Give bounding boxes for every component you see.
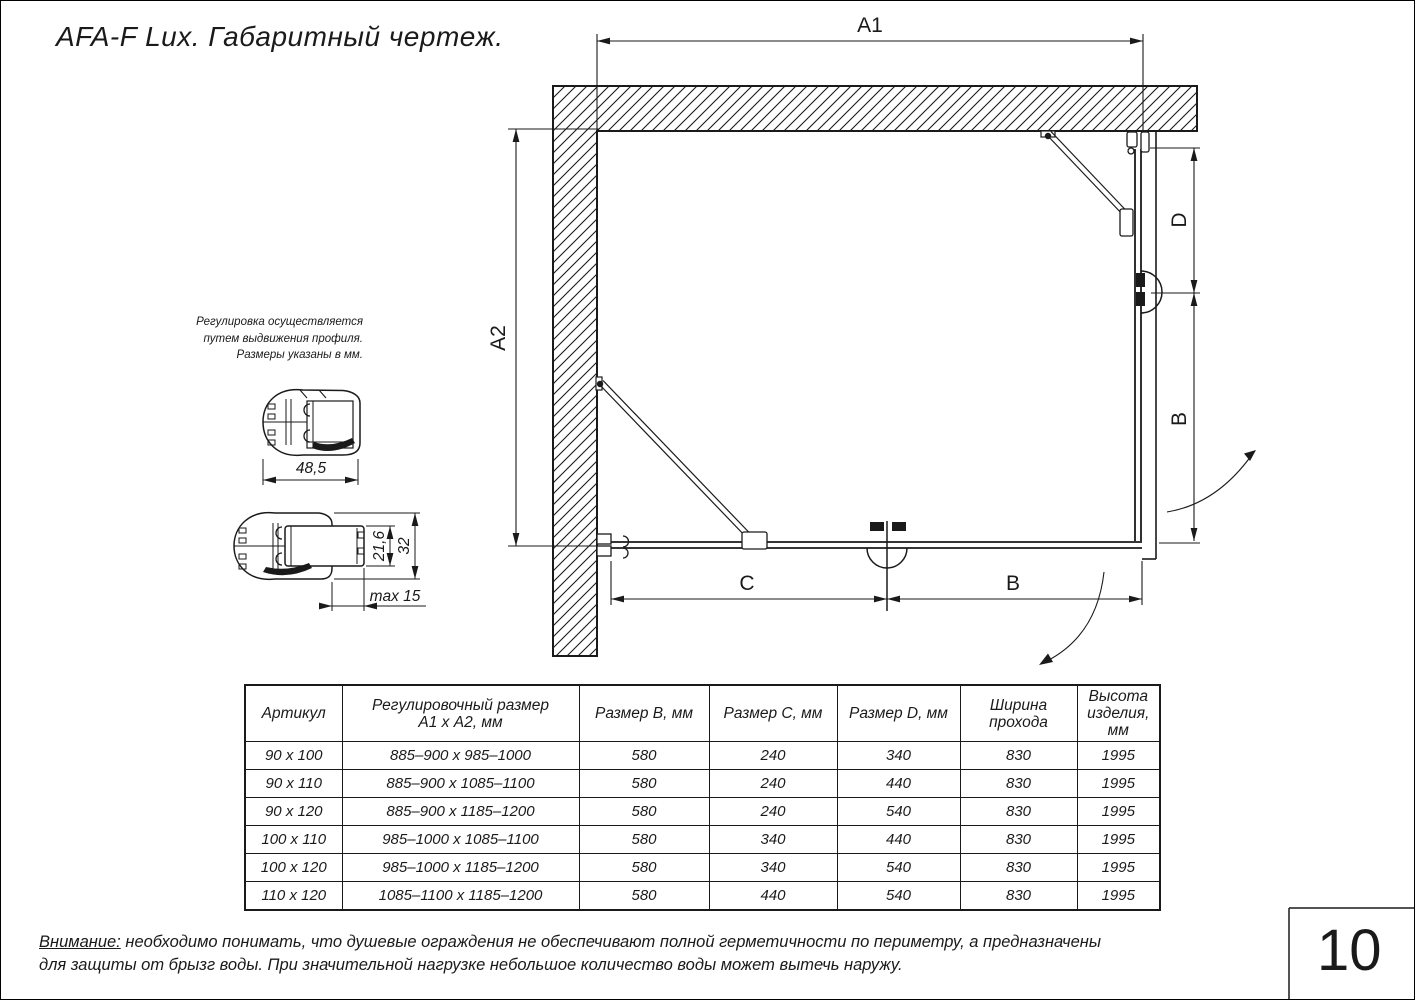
- cell-artikul: 100 x 120: [245, 854, 342, 882]
- cell-b: 580: [579, 854, 709, 882]
- col-header-size-c: Размер C, мм: [709, 685, 837, 742]
- cell-range: 885–900 x 985–1000: [342, 742, 579, 770]
- dim-b-bottom-label: B: [1006, 572, 1020, 595]
- dim-d-b-right: [1150, 148, 1200, 543]
- door-handle-right: [1136, 271, 1162, 313]
- dim-a1-label: A1: [857, 14, 883, 37]
- cell-pass: 830: [960, 854, 1077, 882]
- cell-height: 1995: [1077, 826, 1160, 854]
- warning-label: Внимание:: [39, 933, 121, 951]
- cell-height: 1995: [1077, 770, 1160, 798]
- col-header-artikul: Артикул: [245, 685, 342, 742]
- sheet-number: 10: [1317, 921, 1382, 981]
- adjustment-note: Регулировка осуществляется путем выдвиже…: [189, 314, 363, 364]
- table-row: 90 x 110885–900 x 1085–11005802404408301…: [245, 770, 1160, 798]
- cell-d: 440: [837, 826, 960, 854]
- cell-c: 240: [709, 798, 837, 826]
- adjustment-note-line: путем выдвижения профиля.: [189, 331, 363, 348]
- cell-range: 1085–1100 x 1185–1200: [342, 882, 579, 911]
- col-header-size-b: Размер B, мм: [579, 685, 709, 742]
- cell-range: 985–1000 x 1185–1200: [342, 854, 579, 882]
- adjustment-note-line: Размеры указаны в мм.: [189, 347, 363, 364]
- cell-height: 1995: [1077, 798, 1160, 826]
- cell-pass: 830: [960, 742, 1077, 770]
- cell-b: 580: [579, 742, 709, 770]
- cell-pass: 830: [960, 770, 1077, 798]
- cell-artikul: 90 x 100: [245, 742, 342, 770]
- adjustment-note-line: Регулировка осуществляется: [189, 314, 363, 331]
- cell-height: 1995: [1077, 742, 1160, 770]
- warning-line-1: Внимание: необходимо понимать, что душев…: [39, 931, 1179, 954]
- cell-d: 540: [837, 798, 960, 826]
- dim-c-label: C: [739, 572, 754, 595]
- cell-pass: 830: [960, 826, 1077, 854]
- cell-height: 1995: [1077, 882, 1160, 911]
- cell-artikul: 100 x 110: [245, 826, 342, 854]
- cell-artikul: 90 x 110: [245, 770, 342, 798]
- cell-c: 340: [709, 854, 837, 882]
- cell-d: 540: [837, 882, 960, 911]
- cell-b: 580: [579, 798, 709, 826]
- cell-b: 580: [579, 882, 709, 911]
- table-row: 100 x 110985–1000 x 1085–110058034044083…: [245, 826, 1160, 854]
- profile2-max-extension-dim: max 15: [370, 588, 421, 605]
- cell-height: 1995: [1077, 854, 1160, 882]
- cell-range: 885–900 x 1085–1100: [342, 770, 579, 798]
- cell-range: 985–1000 x 1085–1100: [342, 826, 579, 854]
- cell-c: 240: [709, 742, 837, 770]
- table-row: 100 x 120985–1000 x 1185–120058034054083…: [245, 854, 1160, 882]
- bottom-wall-profile: [597, 534, 629, 558]
- cell-pass: 830: [960, 882, 1077, 911]
- walls-hatched: [553, 86, 1197, 656]
- col-header-size-d: Размер D, мм: [837, 685, 960, 742]
- support-bar-bottom-left: [596, 377, 767, 549]
- cell-b: 580: [579, 770, 709, 798]
- dim-a2-label: A2: [487, 325, 510, 351]
- cell-d: 540: [837, 854, 960, 882]
- col-header-adjust-range: Регулировочный размерА1 х А2, мм: [342, 685, 579, 742]
- warning-text: Внимание: необходимо понимать, что душев…: [39, 931, 1179, 977]
- dimensions-table: Артикул Регулировочный размерА1 х А2, мм…: [244, 684, 1161, 911]
- cell-artikul: 90 x 120: [245, 798, 342, 826]
- cell-c: 440: [709, 882, 837, 911]
- table-header-row: Артикул Регулировочный размерА1 х А2, мм…: [245, 685, 1160, 742]
- enclosure-outline: [611, 131, 1156, 611]
- drawing-sheet: AFA-F Lux. Габаритный чертеж. A1 A2: [0, 0, 1415, 1000]
- cell-b: 580: [579, 826, 709, 854]
- warning-line-2: для защиты от брызг воды. При значительн…: [39, 954, 1179, 977]
- col-header-pass-width: Ширинапрохода: [960, 685, 1077, 742]
- cell-d: 440: [837, 770, 960, 798]
- table-row: 90 x 120885–900 x 1185–12005802405408301…: [245, 798, 1160, 826]
- top-wall-bracket: [1127, 132, 1149, 154]
- support-bar-top-right: [1041, 131, 1133, 236]
- cell-artikul: 110 x 120: [245, 882, 342, 911]
- profile1-width-dim: 48,5: [296, 460, 327, 477]
- dim-d-label: D: [1168, 212, 1191, 227]
- col-header-height: Высотаизделия,мм: [1077, 685, 1160, 742]
- cell-c: 340: [709, 826, 837, 854]
- cell-pass: 830: [960, 798, 1077, 826]
- table-row: 110 x 1201085–1100 x 1185–12005804405408…: [245, 882, 1160, 911]
- profile2-outer-dim: 32: [396, 537, 413, 555]
- profile2-inner-dim: 21,6: [371, 531, 388, 563]
- cell-range: 885–900 x 1185–1200: [342, 798, 579, 826]
- table-row: 90 x 100885–900 x 985–100058024034083019…: [245, 742, 1160, 770]
- cell-c: 240: [709, 770, 837, 798]
- cell-d: 340: [837, 742, 960, 770]
- dim-b-right-label: B: [1168, 412, 1191, 426]
